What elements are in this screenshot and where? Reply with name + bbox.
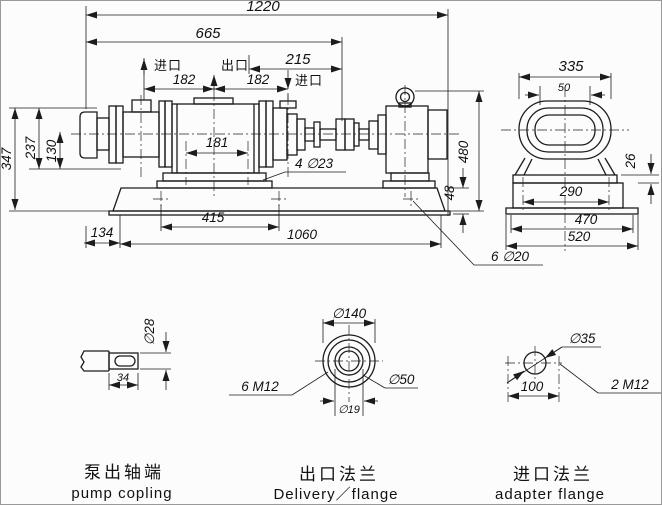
dim-key-length: 34 bbox=[117, 372, 129, 384]
keyway-slot bbox=[115, 356, 135, 366]
dim-flange-od: ∅140 bbox=[332, 306, 367, 321]
label-inlet-right: 进口 bbox=[295, 73, 323, 88]
dim-48: 48 bbox=[442, 185, 457, 201]
caption-adapter-zh: 进口法兰 bbox=[513, 465, 593, 484]
dim-470: 470 bbox=[575, 212, 598, 227]
label-adapter-bolts: 2 M12 bbox=[610, 377, 649, 392]
shaft-end-detail: ∅28 34 bbox=[81, 318, 171, 390]
caption-shaft-en: pump copling bbox=[71, 485, 172, 502]
caption-delivery-zh: 出口法兰 bbox=[299, 465, 379, 484]
caption-delivery-en: Delivery／flange bbox=[273, 486, 398, 503]
dim-boss-diameter: ∅50 bbox=[388, 372, 415, 387]
dim-182-right: 182 bbox=[247, 72, 270, 87]
end-view-dimensions: 335 50 26 290 470 520 bbox=[506, 58, 659, 250]
dim-adapter-bore: ∅35 bbox=[569, 331, 596, 346]
captions: 泵出轴端 pump copling 出口法兰 Delivery／flange 进… bbox=[71, 463, 605, 503]
dim-237: 237 bbox=[23, 136, 38, 160]
delivery-flange-detail: ∅140 6 M12 ∅50 ∅19 bbox=[229, 306, 418, 416]
dim-134: 134 bbox=[91, 225, 114, 240]
dim-215: 215 bbox=[284, 51, 311, 68]
main-view-pump-unit bbox=[71, 85, 459, 215]
drawing-canvas: 1220 665 215 进口 出口 进口 182 182 347 237 13… bbox=[1, 1, 661, 504]
dim-335: 335 bbox=[558, 58, 584, 75]
dim-182-left: 182 bbox=[173, 72, 196, 87]
dim-1220: 1220 bbox=[246, 1, 280, 15]
dim-1060: 1060 bbox=[287, 227, 318, 242]
adapter-flange-detail: ∅35 100 2 M12 bbox=[505, 331, 661, 402]
dim-415: 415 bbox=[202, 210, 225, 225]
caption-adapter-en: adapter flange bbox=[495, 486, 605, 503]
pump-dimension-drawing: 1220 665 215 进口 出口 进口 182 182 347 237 13… bbox=[0, 0, 662, 505]
dim-290: 290 bbox=[559, 184, 583, 199]
dim-181: 181 bbox=[206, 135, 229, 150]
dim-480: 480 bbox=[456, 140, 471, 163]
label-outlet: 出口 bbox=[221, 58, 249, 73]
label-foot-holes: 4 ∅23 bbox=[295, 156, 334, 171]
label-inlet-left: 进口 bbox=[154, 58, 182, 73]
main-view-dimensions: 1220 665 215 进口 出口 进口 182 182 347 237 13… bbox=[1, 1, 543, 265]
dim-shaft-diameter: ∅28 bbox=[142, 318, 157, 345]
dim-bore-diameter: ∅19 bbox=[338, 404, 360, 416]
end-view bbox=[501, 87, 638, 251]
dim-50: 50 bbox=[558, 82, 571, 94]
label-base-holes: 6 ∅20 bbox=[491, 249, 530, 264]
dim-130: 130 bbox=[44, 139, 59, 162]
dim-347: 347 bbox=[1, 147, 14, 170]
label-flange-bolts: 6 M12 bbox=[241, 379, 279, 394]
dim-520: 520 bbox=[568, 229, 591, 244]
base-hole-marks bbox=[153, 191, 419, 207]
dim-26: 26 bbox=[623, 153, 638, 170]
caption-shaft-zh: 泵出轴端 bbox=[84, 463, 164, 482]
dim-hole-spacing-100: 100 bbox=[521, 379, 544, 394]
dim-665: 665 bbox=[195, 25, 221, 42]
